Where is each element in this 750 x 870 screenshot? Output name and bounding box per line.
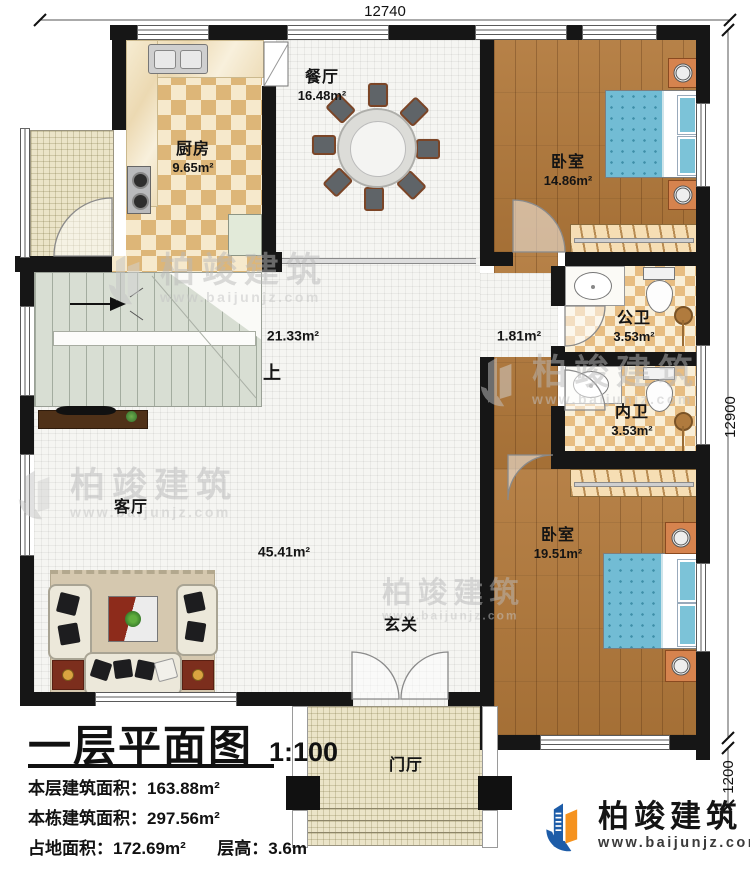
stove (127, 166, 151, 214)
living-area-label: 45.41m² (258, 543, 310, 561)
tv (56, 406, 116, 415)
window (696, 103, 710, 187)
chair (368, 83, 388, 107)
sofa-pillow (154, 658, 178, 682)
dining-table-top (350, 121, 406, 177)
window (137, 25, 209, 40)
wall (20, 692, 95, 706)
window (475, 25, 567, 40)
room-name: 门厅 (389, 756, 423, 776)
side-table (52, 660, 84, 690)
room-area: 3.53m² (611, 423, 652, 439)
chair (364, 187, 384, 211)
side-patio-floor (30, 130, 114, 258)
floor-area-value: 163.88m² (147, 779, 220, 798)
wall (235, 692, 353, 706)
floor-area-label: 本层建筑面积： (28, 779, 147, 798)
shower-head (674, 306, 693, 325)
window (287, 25, 389, 40)
sofa-pillow (134, 659, 155, 680)
wall (20, 554, 34, 694)
bed-pillow (678, 137, 697, 175)
dimension-top: 12740 (40, 3, 730, 20)
wall (207, 25, 287, 40)
floor-area-line: 本层建筑面积：163.88m² (28, 774, 220, 799)
wall (480, 25, 494, 252)
title-underline (28, 764, 274, 768)
dimension-value: 12740 (364, 3, 406, 20)
table-knob (62, 669, 74, 681)
story-height-label: 层高： (217, 839, 268, 858)
dimension-value: 1200 (720, 760, 737, 793)
burner (132, 172, 149, 189)
bedroom1-label: 卧室 14.86m² (544, 153, 592, 189)
wall (565, 25, 582, 40)
side-table (182, 660, 214, 690)
sofa-bottom (84, 652, 182, 696)
plant (125, 611, 141, 627)
inner-bath-label: 内卫 3.53m² (611, 403, 652, 439)
dimension-value: 12900 (722, 396, 739, 438)
land-area-value: 172.69m² (113, 839, 186, 858)
wall (20, 272, 34, 306)
kitchen-sink (148, 44, 208, 74)
dimension-side: 12900 (722, 386, 739, 448)
room-area: 45.41m² (258, 543, 310, 559)
room-name: 公卫 (613, 309, 654, 329)
wall (480, 357, 494, 735)
chair (312, 135, 336, 155)
bed-pillow (678, 604, 697, 646)
bed-pillow (678, 96, 697, 134)
window (696, 345, 710, 445)
room-name: 卧室 (534, 526, 582, 546)
stair-wedge (143, 273, 261, 340)
sofa-pillow (113, 659, 133, 679)
porch-pilaster (482, 810, 498, 848)
sofa-right (176, 584, 218, 656)
room-name: 厨房 (172, 140, 213, 160)
bedroom2-wardrobe (570, 469, 698, 497)
coffee-table (108, 596, 158, 642)
room-name: 内卫 (611, 403, 652, 423)
room-area: 21.33m² (267, 327, 319, 343)
wall (696, 25, 710, 103)
land-area-label: 占地面积： (28, 839, 113, 858)
wall (551, 266, 565, 306)
porch-column (478, 776, 512, 810)
room-name: 卧室 (544, 153, 592, 173)
room-area: 19.51m² (534, 546, 582, 562)
wall (551, 352, 710, 366)
window (20, 306, 34, 396)
nightstand (668, 58, 698, 88)
wall (20, 394, 34, 454)
sofa-pillow (185, 621, 207, 643)
room-area: 9.65m² (172, 160, 213, 176)
room-name: 餐厅 (298, 68, 346, 88)
window (20, 128, 30, 258)
stairs-up-text: 上 (263, 363, 281, 383)
window (95, 692, 237, 706)
hall-area-label: 21.33m² (267, 327, 319, 345)
bed-mattress (604, 554, 663, 648)
building-area-label: 本栋建筑面积： (28, 809, 147, 828)
bedroom2-label: 卧室 19.51m² (534, 526, 582, 562)
corridor-area-label: 1.81m² (497, 327, 541, 345)
sofa-pillow (90, 659, 113, 682)
entrance-threshold (353, 692, 448, 706)
chair (416, 139, 440, 159)
wall (262, 86, 276, 256)
building-area-value: 297.56m² (147, 809, 220, 828)
living-label: 客厅 (114, 498, 148, 518)
staircase (34, 272, 262, 407)
kitchen-cabinet (228, 214, 262, 256)
toilet (643, 267, 675, 280)
bedroom1-wardrobe (570, 224, 698, 254)
sink-basin (154, 50, 176, 69)
brand-logo: 柏竣建筑 www.baijunjz.com (538, 797, 750, 855)
wall (668, 735, 710, 750)
porch-column (286, 776, 320, 810)
porch-steps (298, 808, 490, 844)
bed (603, 553, 698, 649)
window (582, 25, 657, 40)
public-bath-label: 公卫 3.53m² (613, 309, 654, 345)
dining-label: 餐厅 16.48m² (298, 68, 346, 104)
sink-basin (180, 50, 202, 69)
window (540, 735, 670, 750)
stairs-up-label: 上 (263, 362, 281, 385)
porch-pilaster (482, 706, 498, 778)
sofa-pillow (57, 622, 80, 645)
nightstand (665, 522, 697, 554)
wall (15, 256, 112, 272)
table-knob (192, 669, 204, 681)
toilet (643, 367, 675, 380)
dimension-porch: 1200 (720, 752, 737, 802)
sofa-left (48, 584, 92, 660)
room-name: 客厅 (114, 498, 148, 518)
wash-basin (573, 371, 609, 398)
burner (132, 193, 149, 210)
sofa-pillow (183, 591, 206, 614)
brand-url: www.baijunjz.com (598, 835, 750, 851)
room-name: 玄关 (384, 616, 418, 636)
bed-mattress (606, 91, 664, 177)
wall (551, 451, 710, 469)
bed (605, 90, 698, 178)
brand-name: 柏竣建筑 (598, 801, 750, 832)
story-height-value: 3.6m (268, 839, 307, 858)
land-area-line: 占地面积：172.69m² 层高：3.6m (28, 834, 307, 859)
dining-hall-partition (278, 258, 476, 264)
brand-logo-icon (538, 797, 588, 855)
wall (565, 252, 710, 266)
room-area: 16.48m² (298, 88, 346, 104)
nightstand (668, 180, 698, 210)
window (20, 454, 34, 556)
room-area: 3.53m² (613, 329, 654, 345)
shower-head (674, 412, 693, 431)
plan-scale: 1:100 (269, 737, 338, 768)
wall (387, 25, 475, 40)
building-area-line: 本栋建筑面积：297.56m² (28, 804, 220, 829)
floor-plan-page: 柏竣建筑 www.baijunjz.com 柏竣建筑 www.baijunjz.… (0, 0, 750, 870)
wall (112, 25, 126, 130)
room-area: 1.81m² (497, 327, 541, 343)
room-area: 14.86m² (544, 173, 592, 189)
dining-table (337, 108, 417, 188)
bed-pillow (678, 560, 697, 602)
wall (480, 252, 513, 266)
wall (262, 252, 282, 272)
foyer-label: 门厅 (389, 756, 423, 776)
plant (126, 411, 137, 422)
entry-label: 玄关 (384, 616, 418, 636)
stair-landing (53, 331, 256, 346)
wash-basin (574, 272, 612, 300)
window (696, 563, 710, 652)
sofa-pillow (56, 592, 80, 616)
nightstand (665, 650, 697, 682)
kitchen-label: 厨房 9.65m² (172, 140, 213, 176)
